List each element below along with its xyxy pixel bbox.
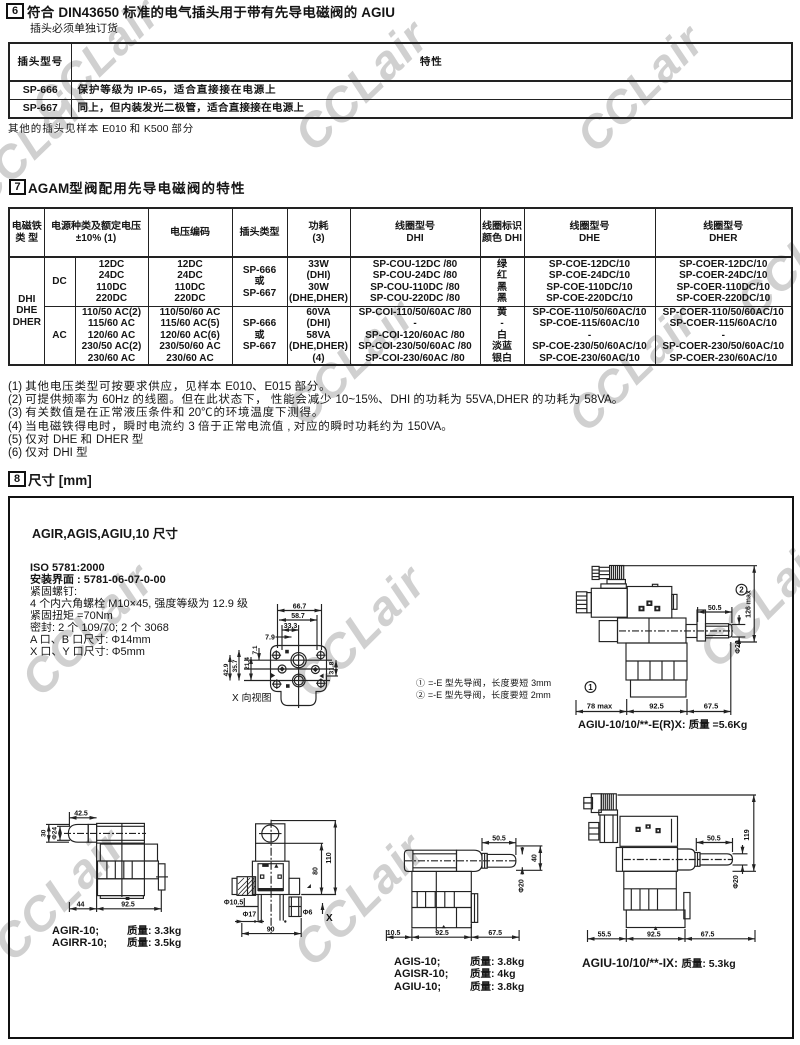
svg-text:50.5: 50.5 <box>707 835 721 842</box>
svg-text:92.5: 92.5 <box>435 930 449 937</box>
svg-text:Φ20: Φ20 <box>735 640 742 654</box>
svg-text:66.7: 66.7 <box>293 604 307 611</box>
svg-text:40: 40 <box>532 854 539 862</box>
svg-text:119: 119 <box>744 829 751 840</box>
svg-text:42.9: 42.9 <box>223 663 230 676</box>
svg-text:67.5: 67.5 <box>704 702 719 711</box>
svg-text:X 向视图: X 向视图 <box>232 689 271 704</box>
svg-text:Φ20: Φ20 <box>733 875 740 889</box>
svg-text:110: 110 <box>326 852 333 863</box>
svg-text:58.7: 58.7 <box>291 613 305 620</box>
svg-text:Φ17: Φ17 <box>243 912 257 919</box>
svg-text:126 max: 126 max <box>746 590 753 618</box>
svg-text:92.5: 92.5 <box>649 702 664 711</box>
svg-text:Φ10.5: Φ10.5 <box>224 900 243 907</box>
svg-text:78 max: 78 max <box>587 702 613 711</box>
svg-text:55.5: 55.5 <box>598 931 612 938</box>
svg-text:80: 80 <box>313 867 320 875</box>
svg-text:1: 1 <box>588 683 593 692</box>
svg-text:35.7: 35.7 <box>232 659 239 672</box>
svg-text:21.4: 21.4 <box>244 657 251 670</box>
svg-text:67.5: 67.5 <box>488 930 502 937</box>
svg-text:Φ6: Φ6 <box>303 910 313 917</box>
svg-text:92.5: 92.5 <box>647 931 661 938</box>
svg-text:7.1: 7.1 <box>252 645 259 654</box>
svg-text:33.3: 33.3 <box>284 623 298 630</box>
svg-text:67.5: 67.5 <box>701 931 715 938</box>
svg-text:44: 44 <box>77 902 85 909</box>
svg-text:50.5: 50.5 <box>708 605 722 612</box>
svg-text:X: X <box>326 913 333 924</box>
svg-text:30: 30 <box>41 829 48 837</box>
svg-text:7.9: 7.9 <box>265 635 275 642</box>
svg-text:Φ24: Φ24 <box>52 827 59 840</box>
svg-text:92.5: 92.5 <box>121 902 135 909</box>
svg-text:31.8: 31.8 <box>329 661 336 674</box>
svg-text:90: 90 <box>267 927 275 934</box>
svg-text:Φ20: Φ20 <box>518 879 525 893</box>
svg-text:2: 2 <box>739 586 744 595</box>
svg-text:10.5: 10.5 <box>387 930 401 937</box>
svg-text:50.5: 50.5 <box>492 836 506 843</box>
svg-text:42.5: 42.5 <box>74 811 88 818</box>
